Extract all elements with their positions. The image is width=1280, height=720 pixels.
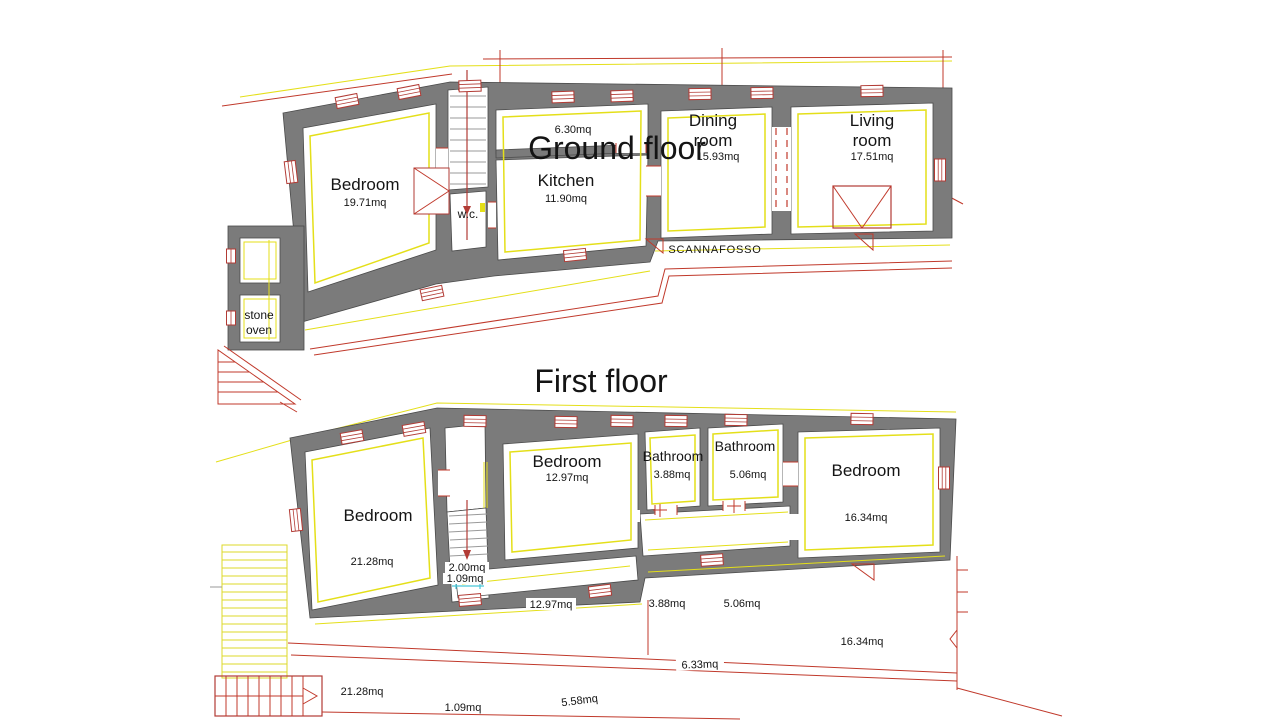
dim-1-09: 1.09mq — [445, 702, 482, 714]
first-floor-plan: Bedroom 21.28mq Bedroom 12.97mq Bathroom… — [210, 402, 1062, 719]
room-area-living: 17.51mq — [851, 151, 894, 163]
first-terrace-hatch — [210, 545, 287, 678]
title-first-floor: First floor — [534, 363, 668, 399]
room-annex-upper — [240, 238, 280, 283]
dim-21-28: 21.28mq — [341, 686, 384, 698]
room-label-stone-oven-1: stone — [244, 308, 274, 322]
room-label-first-bathroom-2: Bathroom — [715, 438, 776, 454]
room-area-first-bedroom-right: 16.34mq — [845, 512, 888, 524]
ground-stairwell — [448, 87, 488, 190]
ground-exterior-staircase — [218, 346, 301, 404]
room-label-kitchen: Kitchen — [538, 171, 595, 190]
dim-5-58: 5.58mq — [561, 693, 599, 709]
dim-5-06: 5.06mq — [724, 598, 761, 610]
dim-3-88: 3.88mq — [649, 598, 686, 610]
room-label-first-bathroom-1: Bathroom — [643, 448, 704, 464]
room-area-ground-bedroom: 19.71mq — [344, 197, 387, 209]
room-first-bathroom-2 — [708, 424, 783, 506]
floorplan-canvas: Bedroom 19.71mq Kitchen 11.90mq 6.30mq D… — [0, 0, 1280, 720]
room-area-kitchen: 11.90mq — [545, 193, 587, 205]
room-label-stone-oven-2: oven — [246, 323, 272, 337]
room-area-first-bathroom-2: 5.06mq — [730, 469, 767, 481]
title-ground-floor: Ground floor — [528, 130, 706, 166]
label-scannafosso: SCANNAFOSSO — [668, 244, 761, 256]
ground-chimney-symbol — [414, 168, 449, 214]
dim-12-97: 12.97mq — [530, 599, 573, 611]
dim-stair-2: 1.09mq — [447, 573, 484, 585]
room-label-first-bedroom-mid: Bedroom — [533, 452, 602, 471]
room-ground-wc — [450, 191, 486, 251]
room-label-dining-1: Dining — [689, 111, 737, 130]
room-area-first-bedroom-mid: 12.97mq — [546, 472, 589, 484]
first-stair-landing — [445, 424, 486, 512]
room-label-wc: w.c. — [457, 207, 479, 221]
room-label-living-1: Living — [850, 111, 894, 130]
dim-6-33: 6.33mq — [681, 658, 718, 671]
dim-16-34: 16.34mq — [841, 636, 884, 648]
room-first-bedroom-right — [798, 428, 940, 558]
room-label-living-2: room — [853, 131, 892, 150]
first-step-symbol — [852, 564, 874, 580]
room-label-first-bedroom-right: Bedroom — [832, 461, 901, 480]
first-exterior-staircase — [215, 676, 322, 716]
room-label-ground-bedroom: Bedroom — [331, 175, 400, 194]
ground-floor-plan: Bedroom 19.71mq Kitchen 11.90mq 6.30mq D… — [218, 48, 963, 404]
room-label-first-bedroom-left: Bedroom — [344, 506, 413, 525]
floorplan-page: Bedroom 19.71mq Kitchen 11.90mq 6.30mq D… — [0, 0, 1280, 720]
room-area-first-bedroom-left: 21.28mq — [351, 556, 394, 568]
room-area-first-bathroom-1: 3.88mq — [654, 469, 691, 481]
